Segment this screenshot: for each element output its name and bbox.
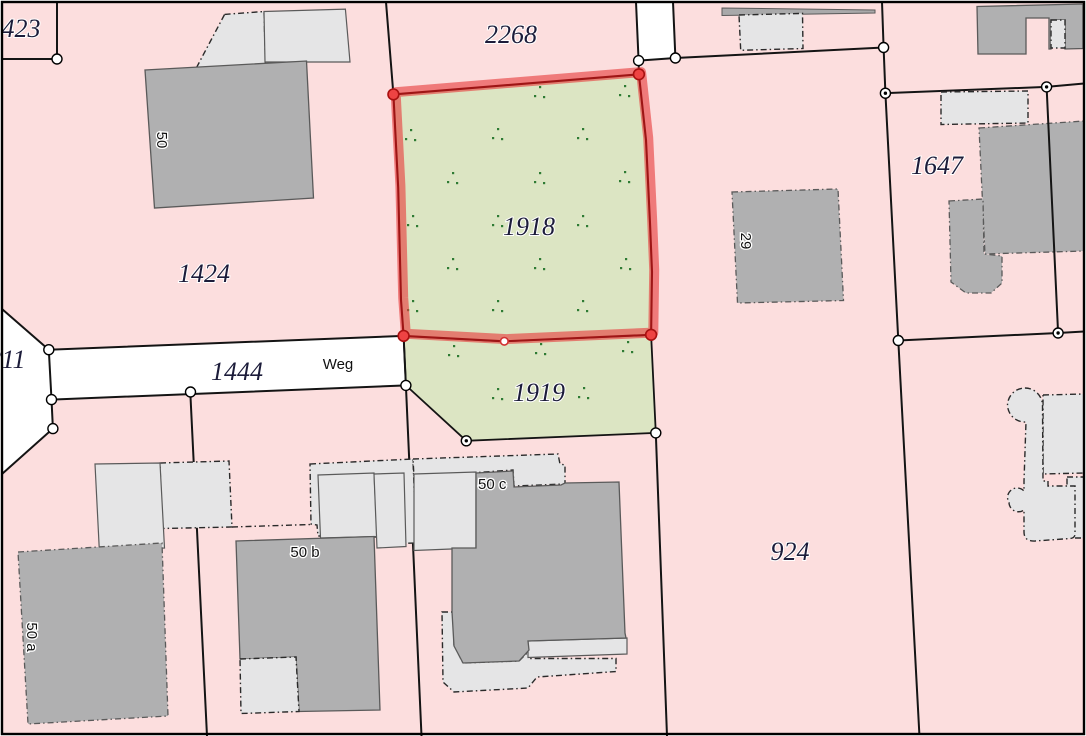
svg-text:924: 924	[771, 537, 810, 566]
svg-text:423: 423	[2, 14, 41, 43]
svg-text:2268: 2268	[485, 20, 537, 49]
svg-text:50: 50	[153, 132, 170, 149]
svg-text:1919: 1919	[513, 378, 565, 407]
svg-text:50 b: 50 b	[290, 544, 319, 561]
svg-text:311: 311	[0, 345, 26, 374]
svg-text:1647: 1647	[911, 151, 964, 180]
svg-text:Weg: Weg	[323, 356, 354, 373]
svg-text:1918: 1918	[503, 212, 555, 241]
svg-text:1424: 1424	[178, 259, 230, 288]
svg-text:1444: 1444	[211, 357, 263, 386]
svg-text:29: 29	[737, 233, 754, 250]
svg-text:50 c: 50 c	[478, 476, 507, 493]
svg-text:50 a: 50 a	[23, 622, 40, 652]
